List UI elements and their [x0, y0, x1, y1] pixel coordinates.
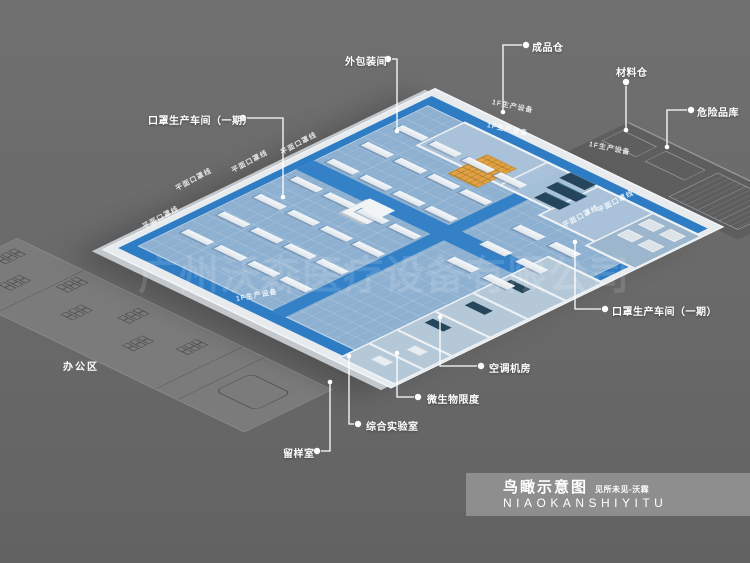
- label-office-area: 办公区: [63, 358, 99, 373]
- callout-label-mask-workshop-phase1-left: 口罩生产车间（一期）: [148, 112, 253, 127]
- stage: 平面口罩线平面口罩线平面口罩线平面口罩线平面口罩线平面口罩线1F生产设备1F生产…: [0, 0, 750, 563]
- title-block: 鸟瞰示意图 见所未见-沃霖 NIAOKANSHIYITU: [466, 473, 750, 516]
- page-title-pinyin: NIAOKANSHIYITU: [503, 497, 750, 509]
- page-subtitle: 见所未见-沃霖: [595, 486, 649, 494]
- callout-label-hvac-room: 空调机房: [489, 360, 531, 375]
- callout-label-comprehensive-lab: 综合实验室: [366, 418, 419, 433]
- callout-label-materials-warehouse: 材料仓: [616, 64, 648, 79]
- callout-label-finished-goods-warehouse: 成品仓: [532, 39, 564, 54]
- page-title: 鸟瞰示意图: [503, 480, 588, 495]
- callout-label-microbial-limit-room: 微生物限度: [427, 391, 480, 406]
- callout-label-outer-packaging-room: 外包装间: [345, 53, 387, 68]
- title-row: 鸟瞰示意图 见所未见-沃霖: [503, 480, 750, 495]
- callout-label-hazardous-goods-warehouse: 危险品库: [697, 104, 739, 119]
- callout-label-sample-retention-room: 留样室: [283, 445, 315, 460]
- callout-label-mask-workshop-phase1-right: 口罩生产车间（一期）: [612, 303, 717, 318]
